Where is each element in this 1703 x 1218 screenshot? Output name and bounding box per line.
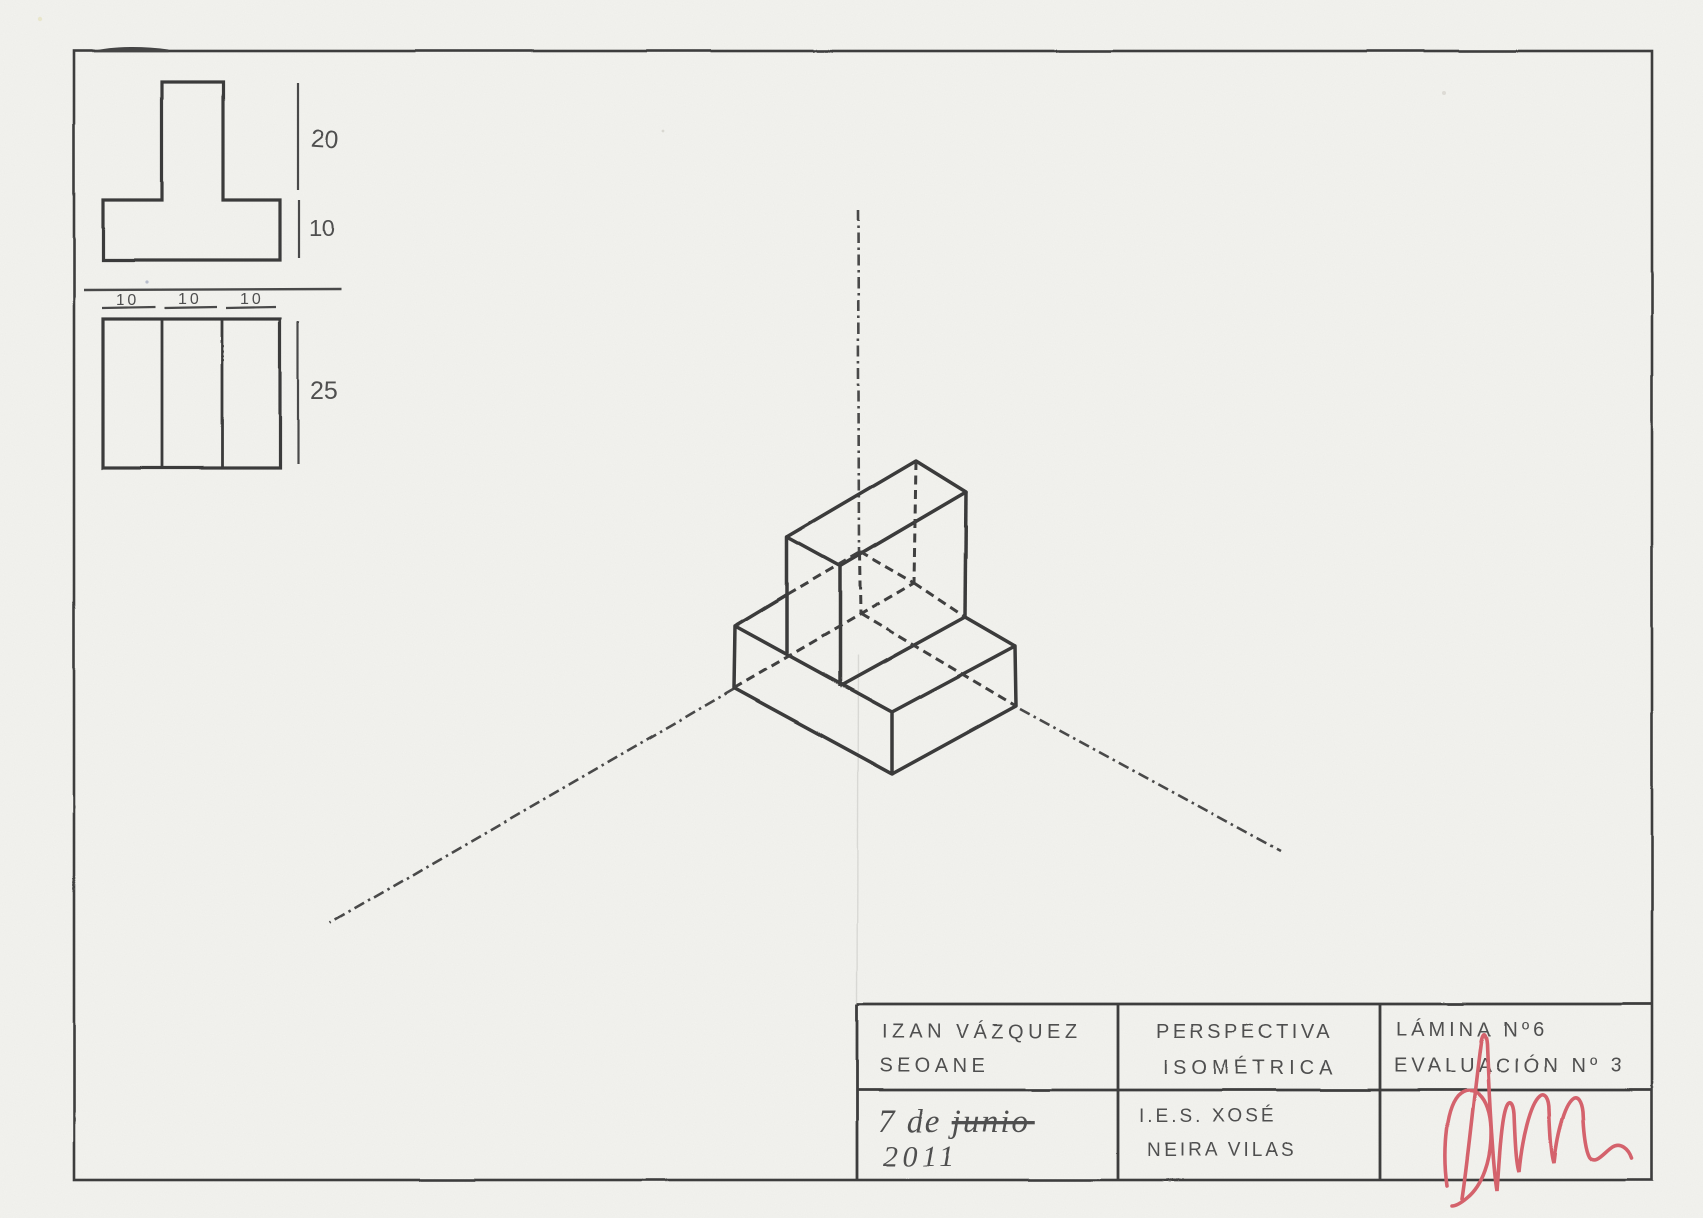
- svg-text:EVALUACIÓN Nº 3: EVALUACIÓN Nº 3: [1394, 1054, 1625, 1077]
- svg-text:SEOANE: SEOANE: [879, 1055, 989, 1077]
- svg-text:ISOMÉTRICA: ISOMÉTRICA: [1163, 1056, 1337, 1079]
- svg-text:I.E.S. XOSÉ: I.E.S. XOSÉ: [1139, 1106, 1277, 1127]
- svg-text:20: 20: [310, 125, 340, 155]
- svg-text:IZAN VÁZQUEZ: IZAN VÁZQUEZ: [882, 1020, 1082, 1043]
- svg-text:LÁMINA Nº6: LÁMINA Nº6: [1396, 1018, 1548, 1041]
- svg-text:PERSPECTIVA: PERSPECTIVA: [1156, 1021, 1333, 1043]
- svg-text:25: 25: [310, 377, 338, 405]
- svg-text:2011: 2011: [883, 1140, 959, 1173]
- svg-text:10: 10: [240, 291, 264, 308]
- svg-text:10: 10: [178, 291, 202, 308]
- svg-text:10: 10: [309, 215, 335, 241]
- svg-text:NEIRA VILAS: NEIRA VILAS: [1147, 1140, 1296, 1161]
- svg-text:7 de junio: 7 de junio: [878, 1104, 1035, 1140]
